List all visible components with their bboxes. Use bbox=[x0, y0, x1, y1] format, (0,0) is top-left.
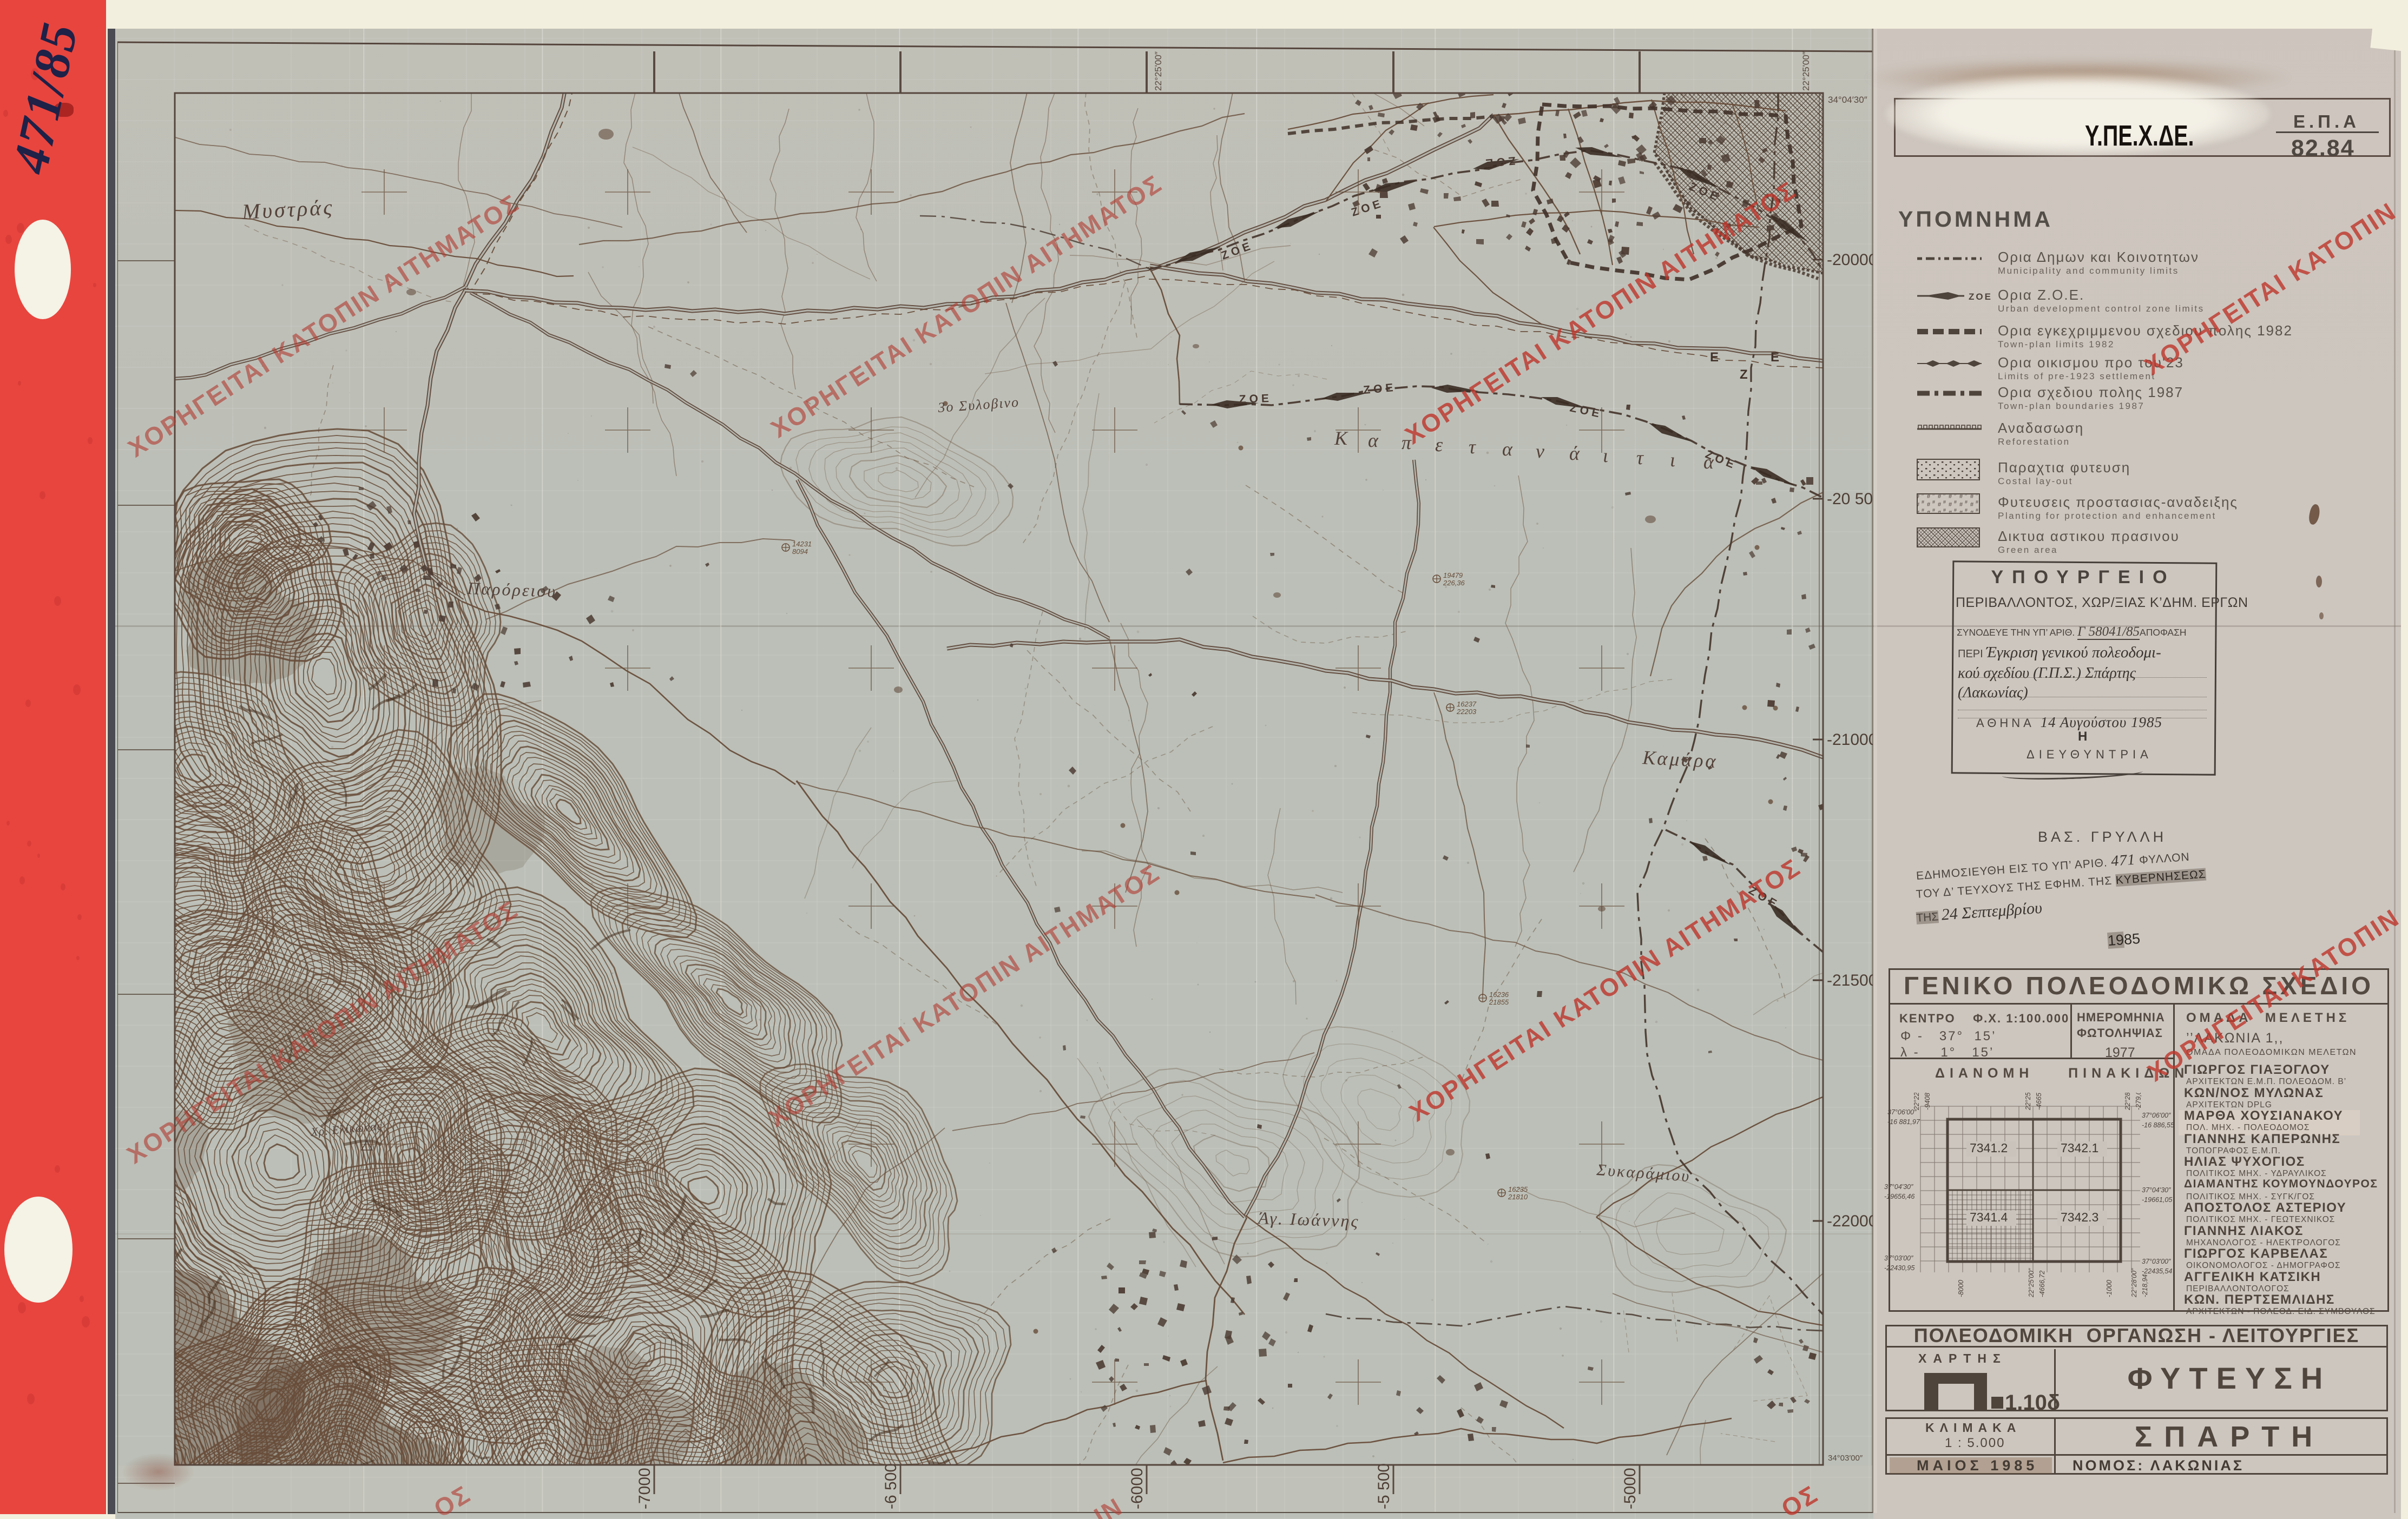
svg-text:22°25'00″: 22°25'00″ bbox=[2024, 1093, 2032, 1111]
svg-text:α: α bbox=[1703, 451, 1714, 473]
svg-text:ΖΟΕ: ΖΟΕ bbox=[1482, 154, 1516, 169]
svg-text:Ε: Ε bbox=[1771, 350, 1779, 365]
svg-text:Καμάρα: Καμάρα bbox=[1642, 747, 1719, 772]
svg-text:-279,00: -279,00 bbox=[2135, 1093, 2142, 1110]
svg-text:ι: ι bbox=[1603, 445, 1608, 466]
svg-text:-19656,46: -19656,46 bbox=[1884, 1193, 1914, 1200]
svg-text:-7000: -7000 bbox=[636, 1468, 654, 1509]
svg-text:16236: 16236 bbox=[1489, 990, 1509, 999]
svg-text:7341.2: 7341.2 bbox=[1970, 1141, 2008, 1155]
svg-text:ΖΟΕ: ΖΟΕ bbox=[1969, 292, 1992, 302]
svg-text:14231: 14231 bbox=[792, 540, 812, 548]
svg-text:34°04′30″: 34°04′30″ bbox=[1828, 95, 1867, 105]
svg-text:-16 881,97: -16 881,97 bbox=[1887, 1118, 1920, 1126]
svg-text:-4666,72: -4666,72 bbox=[2038, 1271, 2046, 1297]
svg-text:α: α bbox=[1502, 438, 1513, 460]
svg-text:Μυστράς: Μυστράς bbox=[241, 195, 334, 224]
svg-text:-4665,28: -4665,28 bbox=[2035, 1093, 2043, 1110]
svg-text:ι: ι bbox=[1670, 449, 1675, 471]
svg-text:-19661,05: -19661,05 bbox=[2142, 1196, 2172, 1204]
svg-text:7342.3: 7342.3 bbox=[2061, 1210, 2098, 1224]
svg-text:-22435,54: -22435,54 bbox=[2142, 1267, 2172, 1275]
svg-text:226,36: 226,36 bbox=[1443, 579, 1465, 587]
svg-text:Παρόρειου: Παρόρειου bbox=[466, 578, 557, 601]
svg-text:ΖΟΕ: ΖΟΕ bbox=[1239, 392, 1272, 406]
svg-text:τ: τ bbox=[1469, 436, 1476, 458]
svg-text:Συκαράμιου: Συκαράμιου bbox=[1596, 1161, 1692, 1185]
svg-text:ε: ε bbox=[1435, 434, 1443, 455]
svg-text:22°25'00″: 22°25'00″ bbox=[1153, 51, 1163, 91]
svg-text:22°28'00″: 22°28'00″ bbox=[2130, 1268, 2138, 1298]
svg-text:-22430,95: -22430,95 bbox=[1884, 1264, 1914, 1272]
svg-text:7341.4: 7341.4 bbox=[1970, 1210, 2008, 1224]
svg-text:7342.1: 7342.1 bbox=[2061, 1141, 2098, 1155]
svg-text:37°03'00″: 37°03'00″ bbox=[1884, 1254, 1913, 1262]
svg-text:21810: 21810 bbox=[1508, 1193, 1528, 1201]
svg-text:τ: τ bbox=[1636, 447, 1644, 468]
svg-text:-16 886,55: -16 886,55 bbox=[2142, 1121, 2174, 1129]
svg-text:-5 500: -5 500 bbox=[1375, 1463, 1393, 1509]
svg-text:16235: 16235 bbox=[1508, 1185, 1528, 1193]
svg-text:-21500: -21500 bbox=[1827, 972, 1877, 989]
svg-text:-218,94: -218,94 bbox=[2141, 1274, 2149, 1297]
svg-text:-9408,74: -9408,74 bbox=[1924, 1093, 1931, 1110]
svg-text:3ο Συλοβινο: 3ο Συλοβινο bbox=[937, 394, 1020, 416]
svg-text:-1000: -1000 bbox=[2106, 1280, 2113, 1297]
svg-text:Άγ. Ιωάννης: Άγ. Ιωάννης bbox=[1257, 1208, 1360, 1231]
svg-text:22°25'00″: 22°25'00″ bbox=[1801, 51, 1811, 91]
svg-text:22°28'00″: 22°28'00″ bbox=[2124, 1093, 2131, 1111]
svg-text:ά: ά bbox=[1569, 443, 1580, 464]
svg-text:ν: ν bbox=[1536, 440, 1544, 462]
svg-text:-8000: -8000 bbox=[1957, 1280, 1965, 1297]
svg-text:Κ: Κ bbox=[1334, 427, 1348, 449]
svg-text:37°04'30″: 37°04'30″ bbox=[2142, 1186, 2171, 1194]
svg-text:21855: 21855 bbox=[1489, 998, 1509, 1006]
svg-text:37°04'30″: 37°04'30″ bbox=[1884, 1183, 1913, 1191]
svg-text:-22000: -22000 bbox=[1827, 1212, 1877, 1230]
svg-text:22203: 22203 bbox=[1456, 708, 1477, 716]
svg-text:19479: 19479 bbox=[1443, 571, 1463, 579]
svg-text:α: α bbox=[1368, 430, 1379, 451]
svg-text:37°06'00″: 37°06'00″ bbox=[2142, 1112, 2171, 1119]
svg-text:-5000: -5000 bbox=[1621, 1468, 1639, 1509]
svg-text:-20 500: -20 500 bbox=[1827, 490, 1882, 508]
svg-text:16237: 16237 bbox=[1457, 700, 1477, 708]
svg-text:8094: 8094 bbox=[792, 547, 808, 556]
svg-text:-6000: -6000 bbox=[1128, 1468, 1146, 1509]
svg-text:37°03'00″: 37°03'00″ bbox=[2142, 1258, 2171, 1265]
svg-text:Ε: Ε bbox=[1710, 350, 1719, 365]
svg-text:34°03′00″: 34°03′00″ bbox=[1828, 1454, 1863, 1463]
svg-text:1.10δ: 1.10δ bbox=[2005, 1391, 2060, 1414]
svg-text:ΖΟΕ: ΖΟΕ bbox=[1569, 401, 1604, 420]
svg-text:-6 500: -6 500 bbox=[882, 1463, 900, 1509]
svg-text:-20000: -20000 bbox=[1827, 251, 1877, 269]
svg-text:37°06'00″: 37°06'00″ bbox=[1887, 1108, 1917, 1116]
svg-text:ΖΟΕ: ΖΟΕ bbox=[1363, 381, 1397, 397]
svg-text:22°25'00″: 22°25'00″ bbox=[2028, 1268, 2035, 1298]
svg-text:Ζ: Ζ bbox=[1740, 367, 1748, 382]
svg-text:-21000: -21000 bbox=[1827, 731, 1877, 749]
